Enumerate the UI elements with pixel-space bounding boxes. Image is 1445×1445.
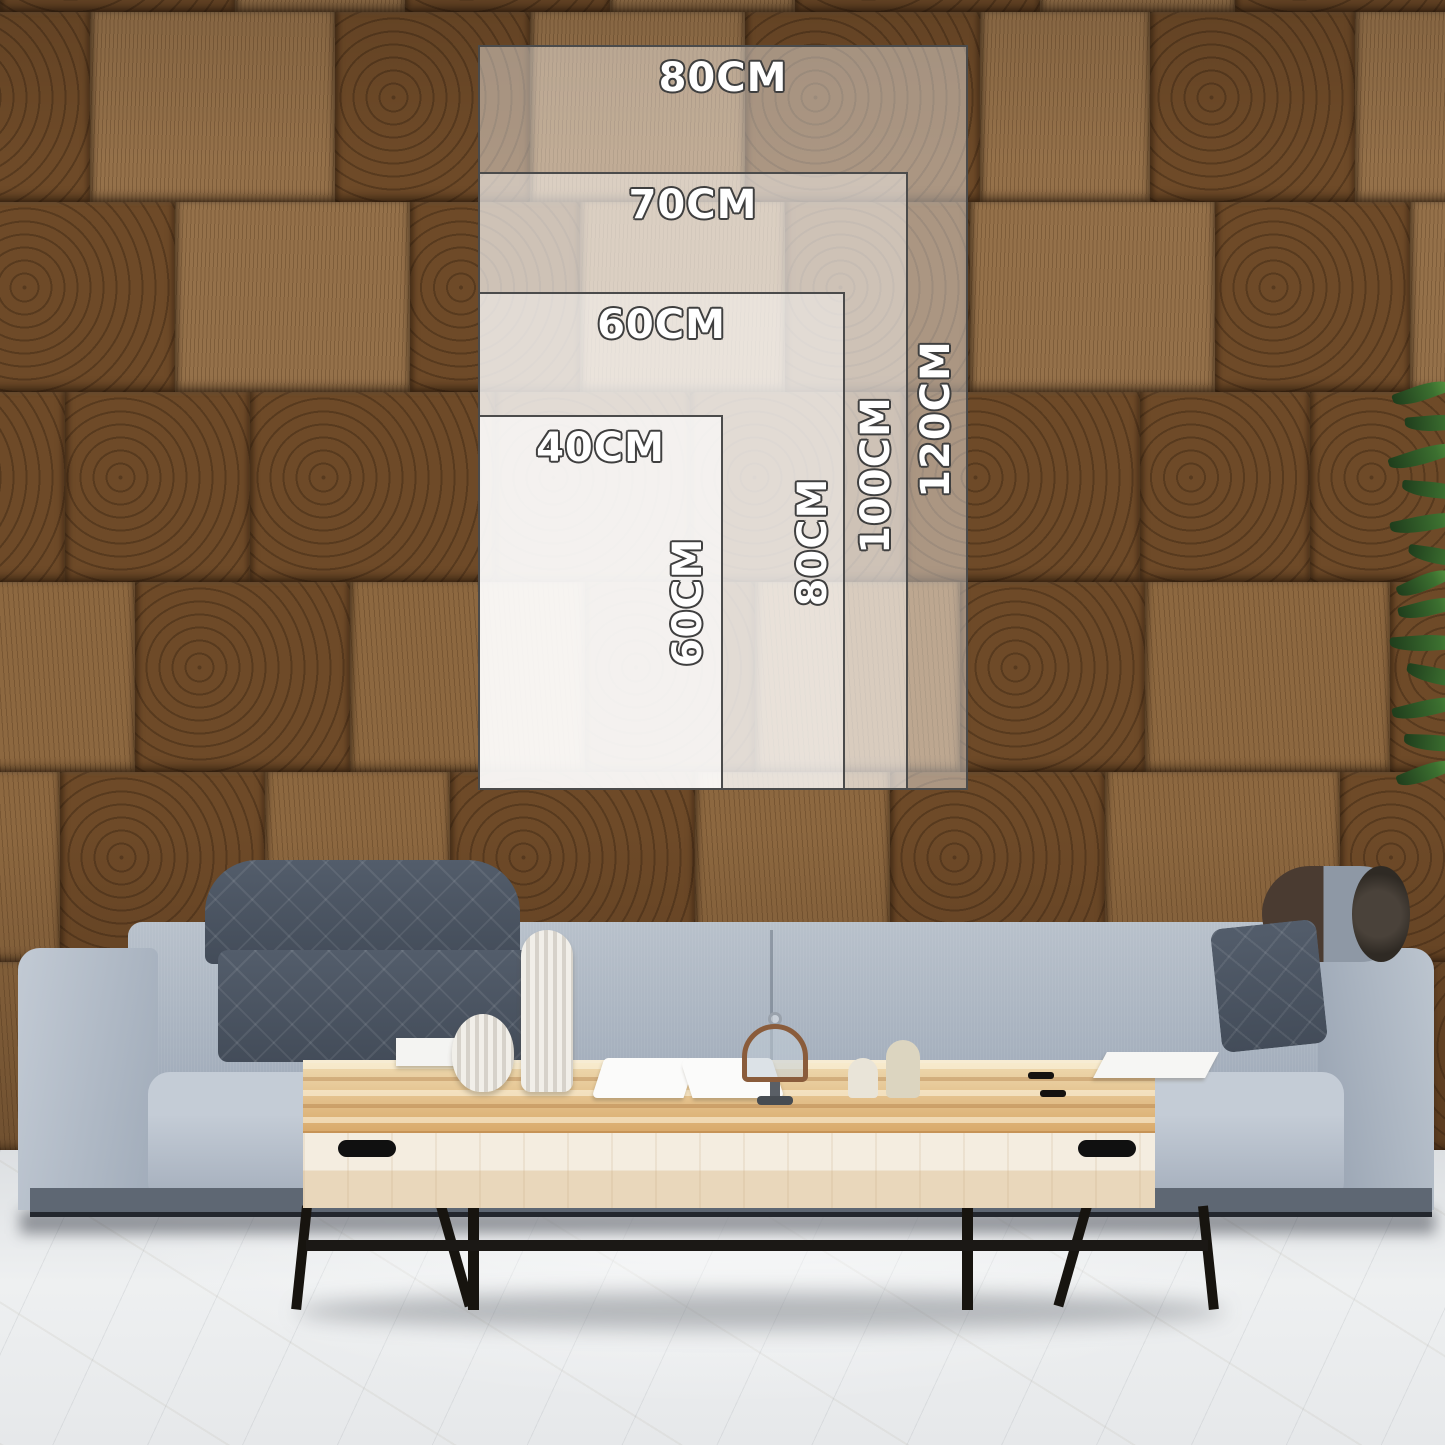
sofa-lumbar-pillow — [1210, 919, 1328, 1053]
wood-block — [175, 202, 410, 392]
table-top-slot — [1040, 1090, 1066, 1097]
glass-cloche — [742, 1024, 808, 1082]
candle-large — [886, 1040, 920, 1098]
wood-block — [1355, 12, 1445, 202]
sofa-headrest-cushion — [205, 860, 520, 964]
sofa-bolster-end-cap — [1352, 866, 1410, 962]
gourd-vase — [452, 1014, 514, 1092]
table-handle-right — [1078, 1140, 1136, 1157]
wood-block — [65, 392, 250, 582]
wood-block — [1140, 392, 1310, 582]
wood-block — [795, 0, 1040, 12]
wood-block — [1150, 12, 1355, 202]
table-top-slot — [1028, 1072, 1054, 1079]
product-mockup-scene: 80CM 120CM 70CM 100CM 60CM 80CM 40CM 60C… — [0, 0, 1445, 1445]
tall-vase — [521, 930, 573, 1092]
table-handle-left — [338, 1140, 396, 1157]
wood-block — [980, 12, 1150, 202]
width-label-40cm: 40CM — [480, 425, 721, 471]
table-crossbar — [306, 1240, 1208, 1251]
wood-block — [0, 772, 60, 962]
wood-block — [1145, 582, 1390, 772]
wood-block — [610, 0, 795, 12]
open-book-left-page — [592, 1058, 697, 1098]
wood-block — [1040, 0, 1235, 12]
candle-small — [848, 1058, 878, 1098]
table-front-panel — [303, 1130, 1155, 1208]
wood-block — [0, 392, 65, 582]
wood-block — [90, 12, 335, 202]
width-label-60cm: 60CM — [480, 302, 843, 348]
glass-cloche-stem — [770, 1082, 780, 1096]
glass-cloche-base — [757, 1096, 793, 1105]
wood-block — [1215, 202, 1410, 392]
wood-block — [405, 0, 610, 12]
wood-block — [970, 202, 1215, 392]
wood-block — [0, 0, 235, 12]
white-book — [1093, 1052, 1219, 1078]
height-label-100cm: 100CM — [853, 396, 899, 554]
height-label-80cm: 80CM — [790, 478, 836, 607]
size-rect-40x60: 40CM 60CM — [478, 415, 723, 790]
wood-block — [0, 202, 175, 392]
width-label-70cm: 70CM — [480, 182, 906, 228]
wood-block — [1235, 0, 1445, 12]
wood-block — [0, 12, 90, 202]
table-floor-shadow — [295, 1292, 1225, 1330]
width-label-80cm: 80CM — [480, 55, 966, 101]
height-label-120cm: 120CM — [913, 340, 959, 498]
wood-block — [1410, 202, 1445, 392]
height-label-60cm: 60CM — [665, 538, 711, 667]
wood-block — [0, 582, 135, 772]
wood-block — [235, 0, 405, 12]
wood-block — [135, 582, 350, 772]
wood-block — [960, 582, 1145, 772]
wood-block — [250, 392, 495, 582]
sofa-arm-left — [18, 948, 158, 1210]
